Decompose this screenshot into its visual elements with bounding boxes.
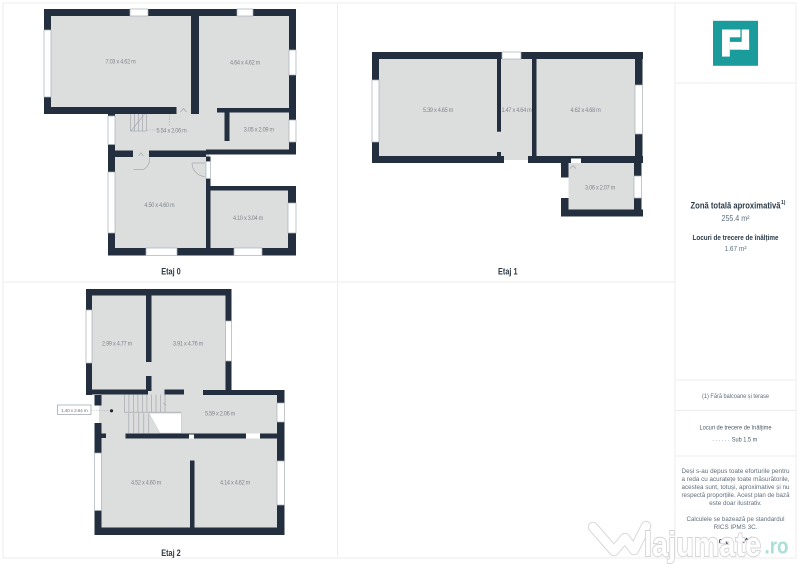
- svg-text:este doar ilustrativ.: este doar ilustrativ.: [709, 500, 762, 507]
- svg-text:4.10 x 3.04 m: 4.10 x 3.04 m: [233, 216, 263, 222]
- svg-text:acestea sunt, totuși, aproxima: acestea sunt, totuși, aproximative și nu: [682, 484, 790, 491]
- svg-text:.ro: .ro: [765, 534, 789, 559]
- svg-text:2.99 x 4.77 m: 2.99 x 4.77 m: [102, 342, 132, 348]
- svg-text:1.40 x 2.64 m: 1.40 x 2.64 m: [61, 408, 88, 414]
- svg-text:(1) Fără balcoane și terase: (1) Fără balcoane și terase: [702, 393, 769, 400]
- svg-text:5.59 x 2.06 m: 5.59 x 2.06 m: [205, 412, 235, 418]
- svg-text:Locuri de trecere de înălțime: Locuri de trecere de înălțime: [700, 425, 772, 432]
- svg-text:3.05 x 2.09 m: 3.05 x 2.09 m: [244, 128, 274, 134]
- svg-text:lajumate: lajumate: [644, 526, 761, 564]
- svg-text:1.67 m²: 1.67 m²: [725, 244, 747, 253]
- svg-text:4.50 x 4.60 m: 4.50 x 4.60 m: [144, 203, 174, 209]
- svg-text:respectă proporțiile. Acest pl: respectă proporțiile. Acest plan de bază: [682, 492, 790, 499]
- svg-text:a reda cu acuratețe toate măsu: a reda cu acuratețe toate măsurătorile,: [682, 476, 790, 483]
- svg-text:1): 1): [781, 200, 786, 206]
- svg-text:Etaj 0: Etaj 0: [161, 267, 181, 277]
- svg-text:1.47 x 4.64 m: 1.47 x 4.64 m: [502, 108, 532, 114]
- svg-text:7.03 x 4.62 m: 7.03 x 4.62 m: [106, 60, 136, 66]
- svg-text:Sub 1.5 m: Sub 1.5 m: [732, 437, 758, 444]
- svg-text:Etaj 2: Etaj 2: [161, 548, 181, 558]
- svg-text:4.52 x 4.60 m: 4.52 x 4.60 m: [131, 481, 161, 487]
- svg-text:4.64 x 4.62 m: 4.64 x 4.62 m: [230, 61, 260, 67]
- svg-text:Calculele se bazează pe standa: Calculele se bazează pe standardul: [687, 516, 785, 523]
- svg-text:Etaj 1: Etaj 1: [498, 267, 518, 277]
- svg-text:Locuri de trecere de înălțime: Locuri de trecere de înălțime: [693, 235, 779, 242]
- svg-text:5.54 x 2.06 m: 5.54 x 2.06 m: [157, 128, 187, 134]
- svg-text:3.06 x 2.07 m: 3.06 x 2.07 m: [585, 186, 615, 192]
- svg-text:4.14 x 4.62 m: 4.14 x 4.62 m: [220, 481, 250, 487]
- svg-text:3.91 x 4.76 m: 3.91 x 4.76 m: [173, 342, 203, 348]
- svg-text:5.39 x 4.65 m: 5.39 x 4.65 m: [423, 108, 453, 114]
- svg-text:4.62 x 4.68 m: 4.62 x 4.68 m: [571, 108, 601, 114]
- svg-text:Deși s-au depus toate eforturi: Deși s-au depus toate eforturile pentru: [682, 468, 791, 475]
- svg-text:255.4 m²: 255.4 m²: [722, 214, 750, 223]
- svg-text:Zonă totală aproximativă: Zonă totală aproximativă: [691, 200, 782, 210]
- svg-text:- - - - - -: - - - - - -: [713, 437, 730, 443]
